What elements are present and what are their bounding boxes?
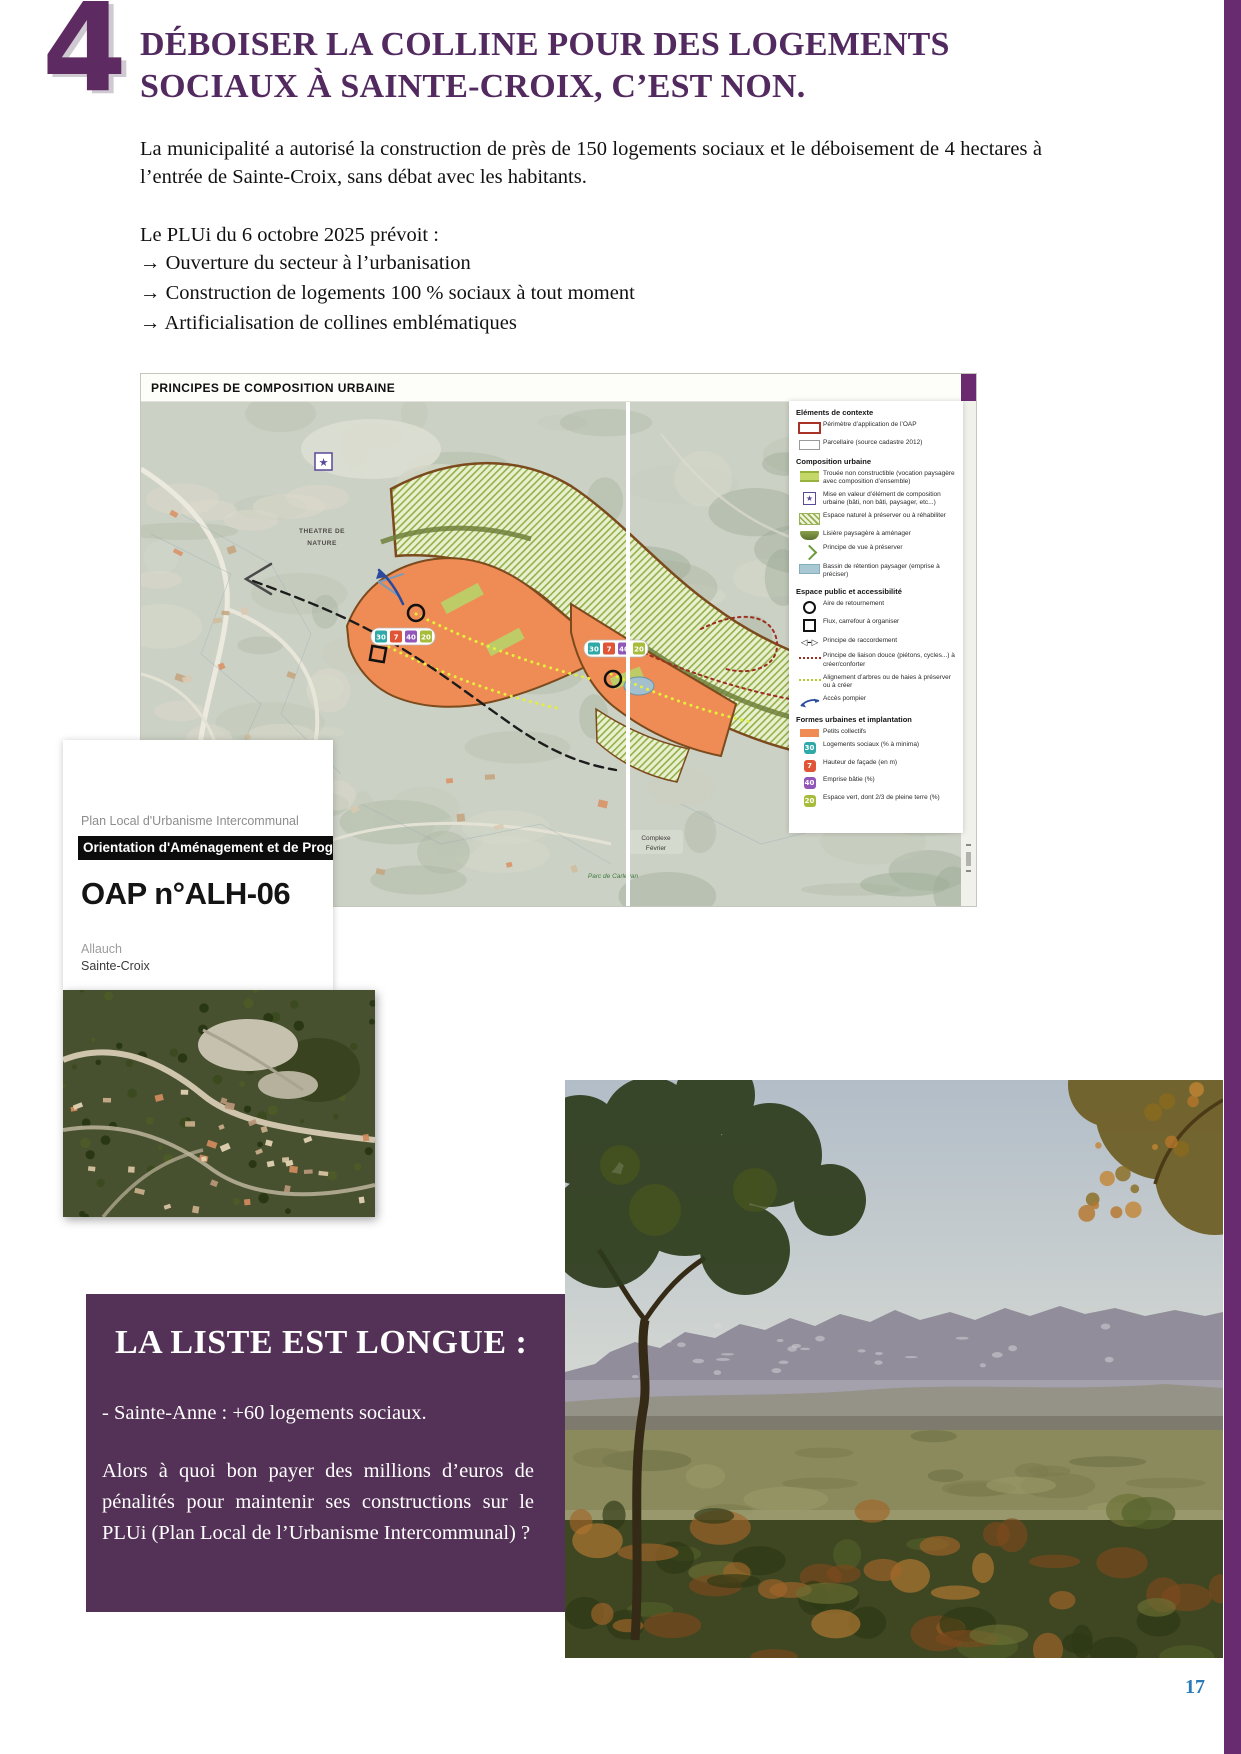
svg-text:30: 30 [376, 634, 386, 642]
legend-section-title: Formes urbaines et implantation [796, 715, 958, 724]
callout-list-item: - Sainte-Anne : +60 logements sociaux. [102, 1402, 572, 1425]
tree-line-dots-icon [799, 679, 821, 681]
legend-section-title: Espace public et accessibilité [796, 587, 958, 596]
small-collective-swatch-icon [800, 729, 819, 737]
page-title-line1: DÉBOISER LA COLLINE POUR DES LOGEMENTS [140, 26, 950, 63]
view-arrow-icon [802, 545, 818, 561]
legend-item: Principe de vue à préserver [796, 544, 958, 558]
facade-height-badge-icon: 7 [804, 760, 816, 772]
svg-text:40: 40 [406, 634, 416, 642]
map-title-strip: PRINCIPES DE COMPOSITION URBAINE [141, 374, 961, 402]
svg-text:20: 20 [421, 634, 431, 642]
green-space-badge-icon: 20 [804, 795, 816, 807]
social-housing-badge-icon: 30 [804, 742, 816, 754]
legend-section-title: Eléments de contexte [796, 408, 958, 417]
green-gap-swatch-icon [800, 471, 819, 482]
retention-basin-swatch-icon [799, 564, 820, 574]
plui-lead: Le PLUi du 6 octobre 2025 prévoit : [140, 222, 1042, 249]
legend-item: Lisière paysagère à aménager [796, 530, 958, 540]
legend-item: Alignement d’arbres ou de haies à préser… [796, 674, 958, 691]
legend-item: 20 Espace vert, dont 2/3 de pleine terre… [796, 794, 958, 807]
document-page: 4 DÉBOISER LA COLLINE POUR DES LOGEMENTS… [0, 0, 1241, 1754]
crossroad-marker-icon [803, 619, 816, 632]
legend-item: Principe de liaison douce (piétons, cycl… [796, 652, 958, 669]
legend-item: Mise en valeur d’élément de composition … [796, 491, 958, 508]
page-title: DÉBOISER LA COLLINE POUR DES LOGEMENTS S… [140, 24, 1100, 108]
parcel-swatch-icon [799, 440, 820, 450]
connection-arrows-icon [801, 638, 818, 648]
page-number: 17 [1150, 1676, 1205, 1699]
svg-text:30: 30 [589, 646, 599, 654]
legend-item: Périmètre d’application de l’OAP [796, 421, 958, 434]
page-right-border [1224, 0, 1241, 1754]
bullet-item: → Artificialisation de collines emblémat… [140, 310, 1042, 336]
zoning-badges: 30 7 40 20 [584, 640, 648, 657]
legend-item: Principe de raccordement [796, 637, 958, 648]
legend-item: Parcellaire (source cadastre 2012) [796, 439, 958, 450]
map-legend: Eléments de contexte Périmètre d’applica… [789, 401, 963, 833]
legend-item: Bassin de rétention paysager (emprise à … [796, 563, 958, 580]
svg-text:NATURE: NATURE [307, 540, 337, 547]
legend-item: Flux, carrefour à organiser [796, 618, 958, 632]
callout-title: LA LISTE EST LONGUE : [115, 1324, 527, 1362]
legend-item: 40 Emprise bâtie (%) [796, 776, 958, 789]
intro-paragraph: La municipalité a autorisé la constructi… [140, 136, 1042, 191]
turnaround-marker-icon [803, 601, 816, 614]
star-swatch-icon [803, 492, 816, 505]
scan-edge-strip [961, 374, 976, 401]
oap-kicker: Plan Local d'Urbanisme Intercommunal [81, 814, 299, 828]
legend-item: 30 Logements sociaux (% à minima) [796, 741, 958, 754]
oap-commune: Allauch [81, 942, 122, 956]
natural-space-swatch-icon [799, 513, 820, 525]
svg-text:7: 7 [394, 634, 399, 642]
village-aerial-photo [63, 990, 375, 1217]
legend-section-title: Composition urbaine [796, 457, 958, 466]
callout-box: LA LISTE EST LONGUE : - Sainte-Anne : +6… [86, 1294, 620, 1612]
soft-link-dots-icon [799, 657, 821, 659]
legend-item: Petits collectifs [796, 728, 958, 737]
page-title-line2: SOCIAUX À SAINTE-CROIX, C’EST NON. [140, 68, 806, 105]
callout-paragraph: Alors à quoi bon payer des millions d’eu… [102, 1456, 534, 1548]
fire-access-arrow-icon [798, 696, 822, 708]
svg-text:★: ★ [319, 456, 329, 469]
footprint-badge-icon: 40 [804, 777, 816, 789]
legend-item: Accès pompier [796, 695, 958, 708]
oap-cover-card: Plan Local d'Urbanisme Intercommunal Ori… [63, 740, 333, 990]
zoning-badges: 30 7 40 20 [371, 628, 435, 645]
oap-district: Sainte-Croix [81, 959, 150, 973]
svg-text:Complexe: Complexe [641, 835, 671, 842]
section-number: 4 [42, 0, 123, 119]
perimeter-swatch-icon [798, 422, 821, 434]
legend-item: 7 Hauteur de façade (en m) [796, 759, 958, 772]
oap-code: OAP n°ALH-06 [81, 876, 290, 912]
svg-text:7: 7 [607, 646, 612, 654]
svg-text:THEATRE DE: THEATRE DE [299, 528, 345, 535]
svg-text:Parc de Carlevan: Parc de Carlevan [588, 873, 639, 880]
svg-text:Février: Février [646, 845, 667, 852]
svg-text:20: 20 [634, 646, 644, 654]
plui-bullet-list: → Ouverture du secteur à l’urbanisation … [140, 250, 1042, 341]
hills-landscape-photo [565, 1080, 1223, 1658]
bullet-item: → Construction de logements 100 % sociau… [140, 280, 1042, 306]
landscape-edge-swatch-icon [800, 531, 819, 540]
oap-banner: Orientation d'Aménagement et de Programm… [78, 836, 333, 860]
bullet-item: → Ouverture du secteur à l’urbanisation [140, 250, 1042, 276]
legend-item: Aire de retournement [796, 600, 958, 614]
legend-item: Trouée non constructible (vocation paysa… [796, 470, 958, 487]
map-title: PRINCIPES DE COMPOSITION URBAINE [151, 381, 395, 395]
legend-item: Espace naturel à préserver ou à réhabili… [796, 512, 958, 525]
